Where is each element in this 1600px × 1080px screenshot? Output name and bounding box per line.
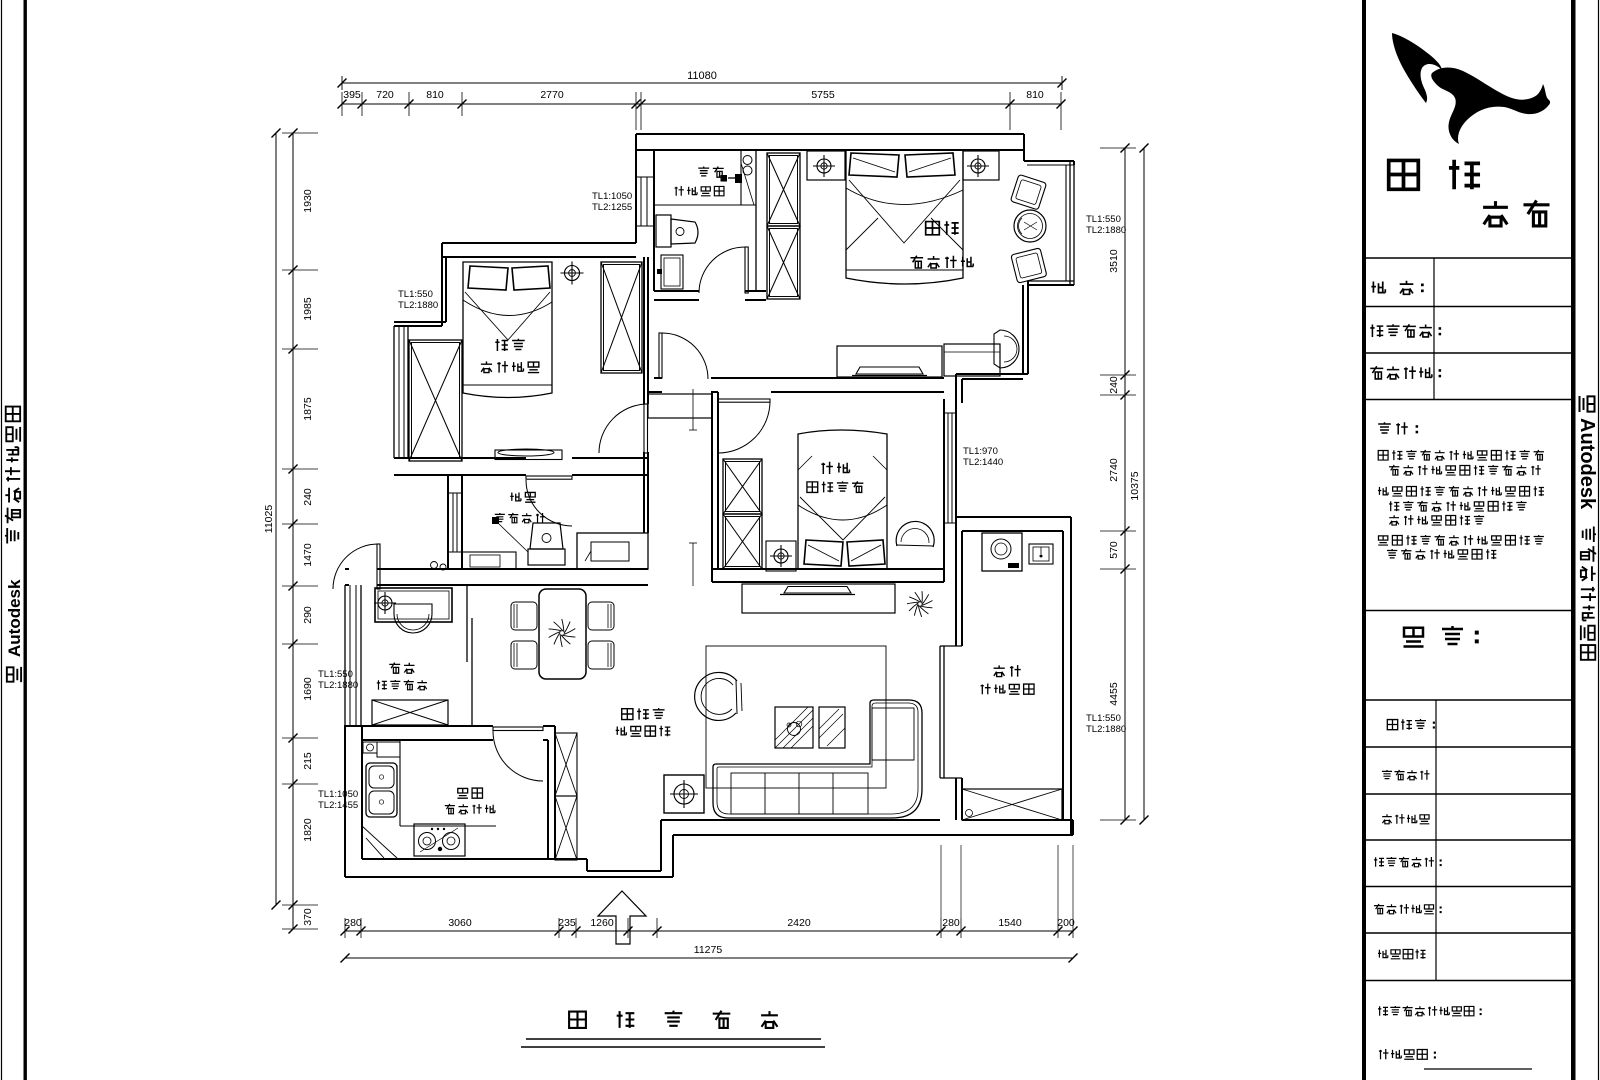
- svg-text:240: 240: [1108, 376, 1120, 394]
- svg-text:290: 290: [302, 606, 314, 624]
- svg-text:TL2:1255: TL2:1255: [592, 202, 632, 213]
- svg-text:1875: 1875: [302, 397, 314, 421]
- svg-text:TL1:970: TL1:970: [963, 446, 998, 457]
- svg-text:5755: 5755: [811, 89, 835, 101]
- svg-text:1540: 1540: [998, 917, 1022, 929]
- svg-text:810: 810: [1026, 89, 1044, 101]
- svg-text:TL2:1880: TL2:1880: [398, 300, 438, 311]
- svg-text:TL1:550: TL1:550: [398, 289, 433, 300]
- svg-text:1930: 1930: [302, 189, 314, 213]
- svg-text:2740: 2740: [1108, 458, 1120, 482]
- svg-text:TL1:1050: TL1:1050: [592, 191, 632, 202]
- svg-text:810: 810: [426, 89, 444, 101]
- svg-text:1820: 1820: [302, 818, 314, 842]
- svg-text:235: 235: [558, 917, 576, 929]
- svg-text:11025: 11025: [263, 505, 275, 534]
- svg-text:1985: 1985: [302, 297, 314, 321]
- svg-text:11080: 11080: [687, 70, 717, 82]
- svg-text:720: 720: [376, 89, 394, 101]
- svg-text:TL2:1880: TL2:1880: [1086, 724, 1126, 735]
- svg-text:1470: 1470: [302, 543, 314, 567]
- svg-text:2770: 2770: [540, 89, 564, 101]
- svg-text:370: 370: [302, 908, 314, 926]
- svg-text:TL1:550: TL1:550: [1086, 713, 1121, 724]
- svg-text:280: 280: [344, 917, 362, 929]
- svg-text:TL2:1880: TL2:1880: [1086, 225, 1126, 236]
- svg-text:TL1:550: TL1:550: [318, 669, 353, 680]
- svg-text:2420: 2420: [787, 917, 811, 929]
- svg-text:200: 200: [1057, 917, 1075, 929]
- svg-text:3510: 3510: [1108, 249, 1120, 273]
- svg-text:4455: 4455: [1108, 682, 1120, 706]
- svg-text:TL2:1440: TL2:1440: [963, 457, 1003, 468]
- svg-text:Autodesk: Autodesk: [1576, 418, 1598, 510]
- svg-text:1690: 1690: [302, 677, 314, 701]
- svg-text:280: 280: [942, 917, 960, 929]
- svg-text:TL1:550: TL1:550: [1086, 214, 1121, 225]
- svg-text:395: 395: [343, 89, 361, 101]
- svg-text:1260: 1260: [590, 917, 614, 929]
- svg-text:11275: 11275: [694, 944, 723, 956]
- svg-text:TL2:1455: TL2:1455: [318, 800, 358, 811]
- svg-text:3060: 3060: [448, 917, 472, 929]
- svg-text:240: 240: [302, 488, 314, 506]
- svg-text:215: 215: [302, 752, 314, 770]
- svg-text:10375: 10375: [1129, 471, 1141, 500]
- svg-text:570: 570: [1108, 541, 1120, 559]
- svg-text:Autodesk: Autodesk: [5, 579, 24, 657]
- svg-text:TL2:1880: TL2:1880: [318, 680, 358, 691]
- svg-text:TL1:1050: TL1:1050: [318, 789, 358, 800]
